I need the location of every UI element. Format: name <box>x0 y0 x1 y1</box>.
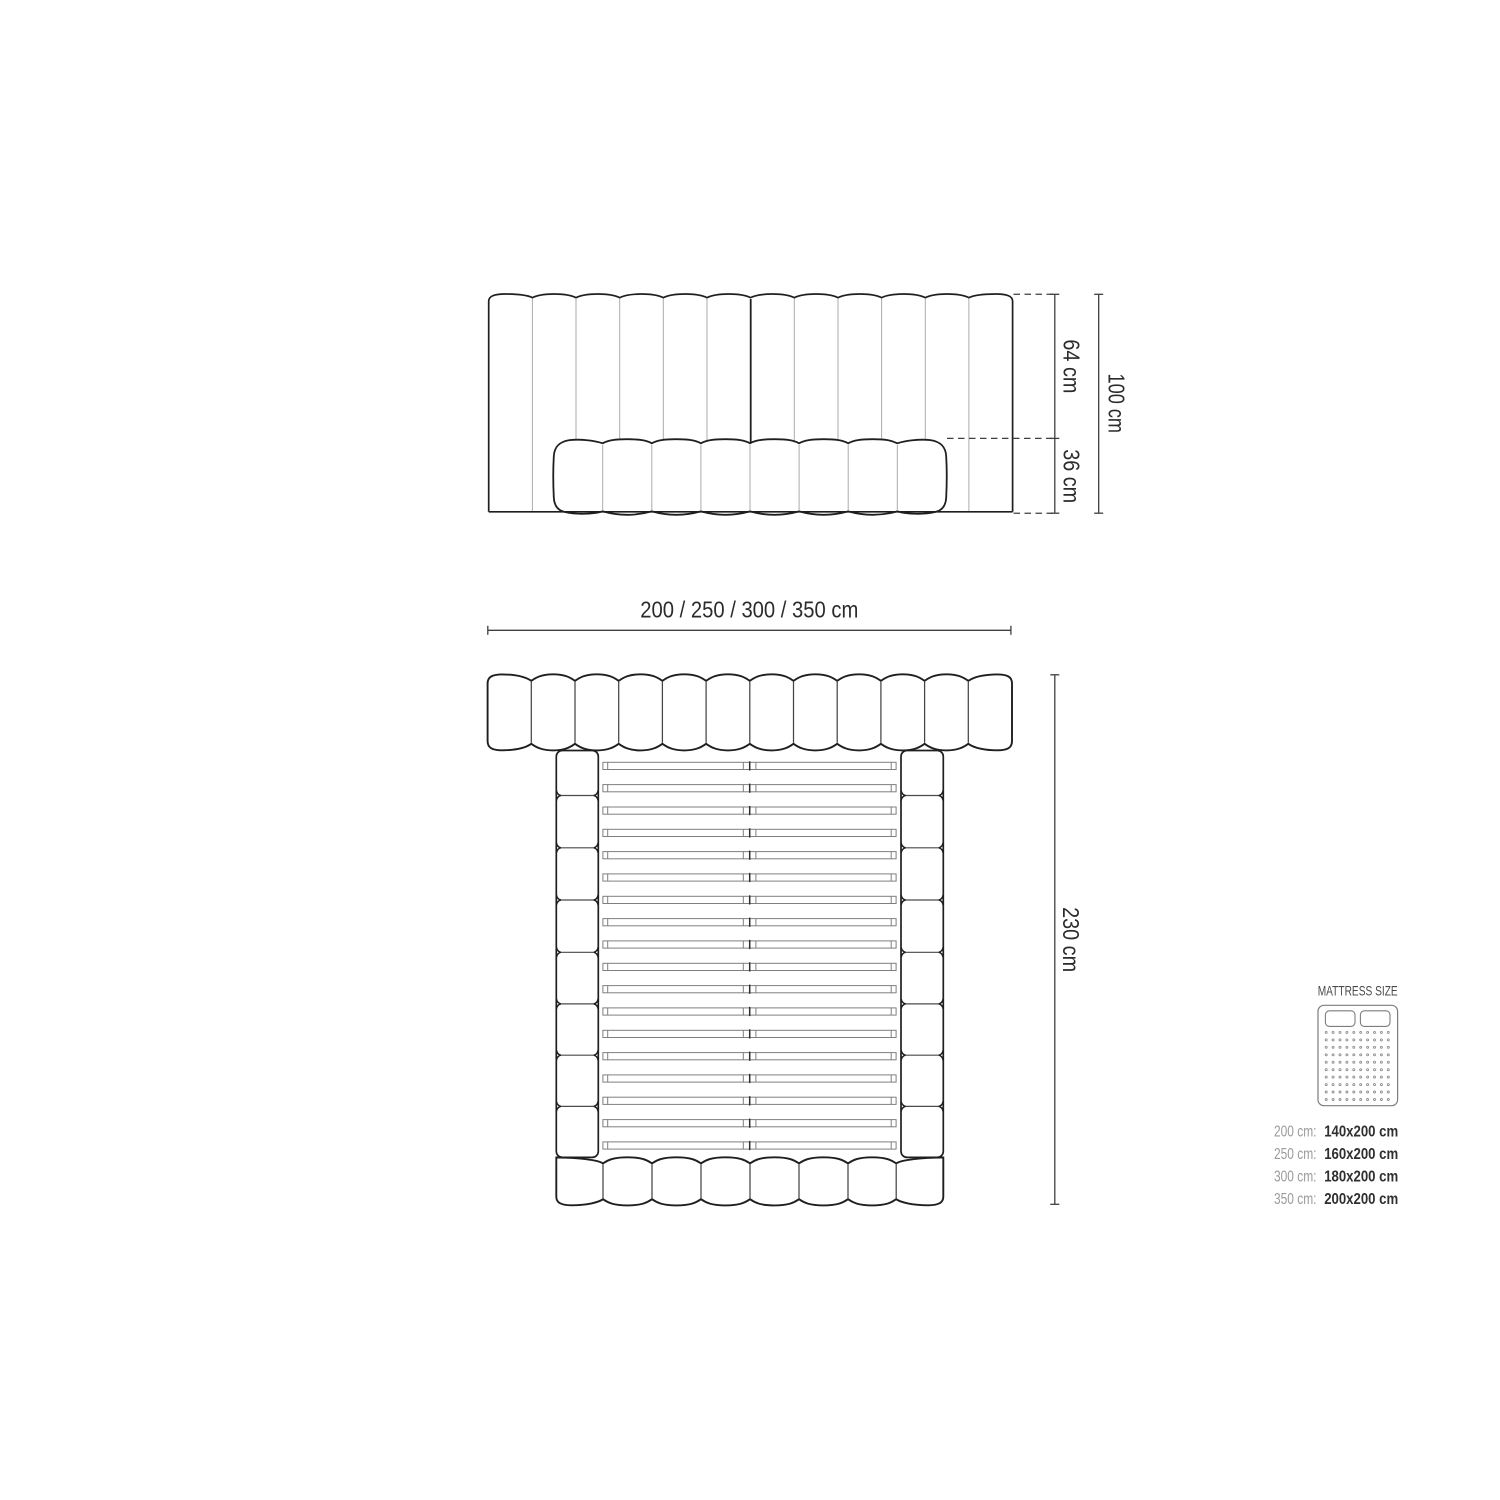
svg-text:64 cm: 64 cm <box>1058 339 1084 393</box>
svg-text:36 cm: 36 cm <box>1058 449 1084 503</box>
svg-text:350 cm:: 350 cm: <box>1274 1191 1317 1208</box>
svg-text:300 cm:: 300 cm: <box>1274 1169 1317 1186</box>
svg-text:250 cm:: 250 cm: <box>1274 1146 1317 1163</box>
svg-text:140x200 cm: 140x200 cm <box>1324 1124 1398 1141</box>
svg-text:180x200 cm: 180x200 cm <box>1324 1169 1398 1186</box>
svg-text:100 cm: 100 cm <box>1103 374 1129 434</box>
svg-text:230 cm: 230 cm <box>1058 907 1084 972</box>
svg-text:200 / 250 / 300 / 350 cm: 200 / 250 / 300 / 350 cm <box>640 597 858 623</box>
svg-text:MATTRESS SIZE: MATTRESS SIZE <box>1318 982 1398 998</box>
svg-text:160x200 cm: 160x200 cm <box>1324 1146 1398 1163</box>
svg-text:200x200 cm: 200x200 cm <box>1324 1191 1398 1208</box>
svg-text:200 cm:: 200 cm: <box>1274 1124 1317 1141</box>
